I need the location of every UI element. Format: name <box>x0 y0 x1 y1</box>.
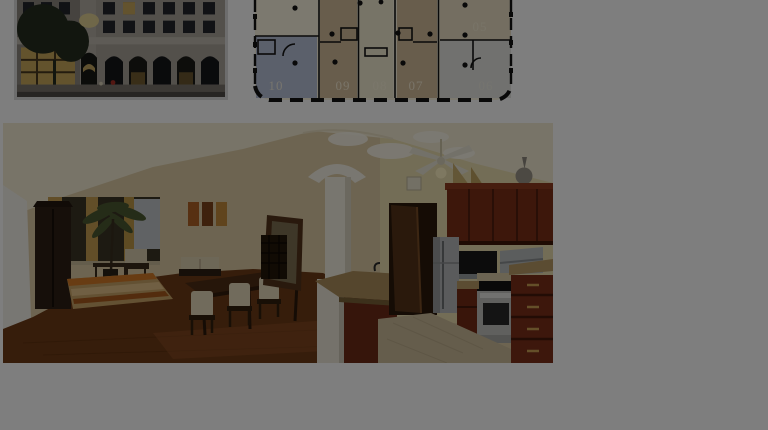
lightbox-overlay[interactable] <box>0 0 768 430</box>
page: { "window": { "width": 768, "height": 43… <box>0 0 768 430</box>
